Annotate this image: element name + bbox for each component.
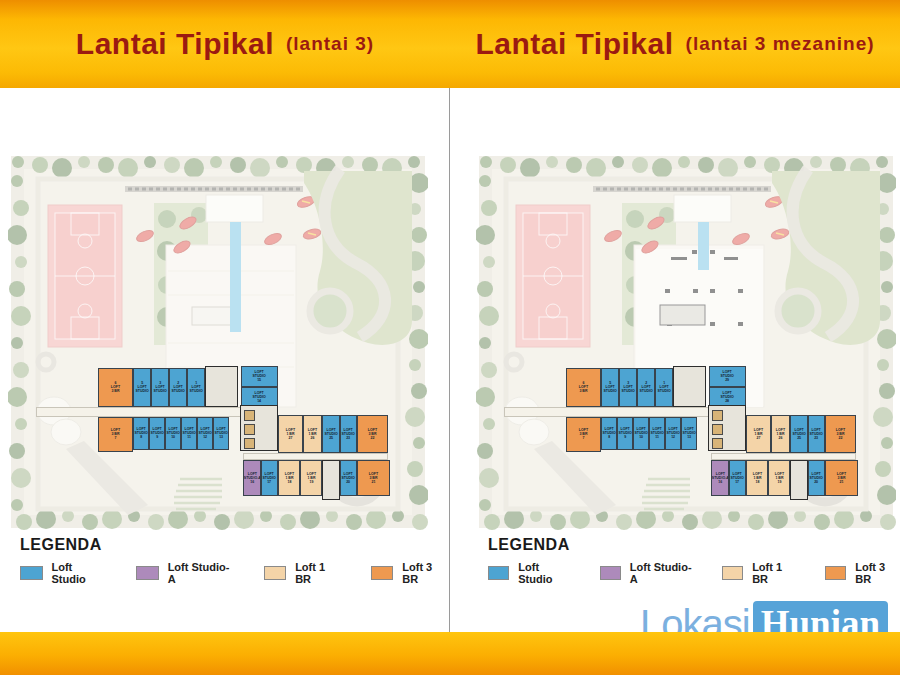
utility-room: [660, 305, 705, 325]
legend-label: Loft Studio: [518, 561, 571, 585]
unit-loft-studio-11: LOFT STUDIO 11: [181, 417, 197, 450]
legend-item-stA: Loft Studio-A: [600, 561, 694, 585]
unit-1-loft-studio: 1 LOFT STUDIO: [655, 368, 673, 407]
legend-label: Loft 3 BR: [855, 561, 900, 585]
unit-loft-1br-27: LOFT 1 BR 27: [746, 415, 771, 453]
header-bar: Lantai Tipikal (lantai 3) Lantai Tipikal…: [0, 0, 900, 88]
unit-loft-studio-10: LOFT STUDIO 10: [165, 417, 181, 450]
floor-panel-lantai-3-mezanine: 6 LOFT 3 BR5 LOFT STUDIO3 LOFT STUDIO2 L…: [450, 88, 900, 632]
unit-loft-1br-27: LOFT 1 BR 27: [278, 415, 303, 453]
unit-6-loft-3br: 6 LOFT 3 BR: [98, 368, 133, 407]
unit-loft-studio-29: LOFT STUDIO 29: [709, 366, 746, 387]
left-panel-title: Lantai Tipikal (lantai 3): [0, 0, 450, 88]
pool: [698, 222, 709, 270]
unit-2-loft-studio: 2 LOFT STUDIO: [637, 368, 655, 407]
unit-loft-3br-7: LOFT 3 BR 7: [566, 417, 601, 452]
unit-loft-studio-17: LOFT STUDIO 17: [261, 460, 278, 496]
page-subtitle: (lantai 3 mezanine): [686, 33, 875, 55]
unit-5-loft-studio: 5 LOFT STUDIO: [601, 368, 619, 407]
unit-loft-3br-22: LOFT 3 BR 22: [825, 415, 856, 453]
legend-item-br3: Loft 3 BR: [371, 561, 450, 585]
unit-loft-studio-23: LOFT STUDIO 23: [340, 415, 357, 453]
unit-loft-1br-26: LOFT 1 BR 26: [771, 415, 790, 453]
pool: [230, 222, 241, 332]
elevator: [244, 410, 255, 421]
page-title: Lantai Tipikal: [76, 27, 274, 61]
legend-label: Loft 3 BR: [402, 561, 450, 585]
legend-label: Loft Studio-A: [630, 561, 694, 585]
unit-loft-1br-19: LOFT 1 BR 19: [768, 460, 790, 496]
corridor: [243, 453, 388, 460]
unit-6-loft-3br: 6 LOFT 3 BR: [566, 368, 601, 407]
legend-item-st: Loft Studio: [488, 561, 572, 585]
service-core: [205, 366, 238, 407]
right-panel-title: Lantai Tipikal (lantai 3 mezanine): [450, 0, 900, 88]
basketball-court: [516, 205, 590, 347]
legend-swatch: [264, 566, 286, 580]
unit-loft-3br-21: LOFT 3 BR 21: [357, 460, 390, 496]
footer-bar: [0, 632, 900, 675]
panel-divider: [449, 88, 450, 632]
unit-loft-studio-13: LOFT STUDIO 13: [681, 417, 697, 450]
unit-loft-studio-20: LOFT STUDIO 20: [340, 460, 357, 496]
service-core: [673, 366, 706, 407]
unit-loft-studio-12: LOFT STUDIO 12: [665, 417, 681, 450]
service-core: [240, 405, 278, 451]
site-plan: 6 LOFT 3 BR5 LOFT STUDIO3 LOFT STUDIO2 L…: [476, 153, 896, 531]
unit-loft-studio-25: LOFT STUDIO 25: [790, 415, 808, 453]
legend-swatch: [20, 566, 43, 580]
unit-loft-3br-21: LOFT 3 BR 21: [825, 460, 858, 496]
unit-loft-studio-15: LOFT STUDIO 15: [241, 366, 278, 387]
legend-item-stA: Loft Studio-A: [136, 561, 236, 585]
site-plan: 6 LOFT 3 BR5 LOFT STUDIO3 LOFT STUDIO2 L…: [8, 153, 428, 531]
unit-3-loft-studio: 3 LOFT STUDIO: [151, 368, 169, 407]
legend-label: Loft Studio: [52, 561, 109, 585]
unit-loft-studio-20: LOFT STUDIO 20: [808, 460, 825, 496]
legend-swatch: [136, 566, 159, 580]
legend: LEGENDA Loft StudioLoft Studio-ALoft 1 B…: [488, 536, 900, 585]
elevator: [712, 410, 723, 421]
legend-label: Loft Studio-A: [168, 561, 236, 585]
unit-loft-studio-17: LOFT STUDIO 17: [729, 460, 746, 496]
legend-swatch: [371, 566, 393, 580]
elevator: [712, 438, 723, 449]
unit-loft-studio-23: LOFT STUDIO 23: [808, 415, 825, 453]
unit-2-loft-studio: 2 LOFT STUDIO: [169, 368, 187, 407]
legend-item-br3: Loft 3 BR: [825, 561, 900, 585]
legend-item-br1: Loft 1 BR: [722, 561, 797, 585]
unit-loft-studio-13: LOFT STUDIO 13: [213, 417, 229, 450]
basketball-court: [48, 205, 122, 347]
unit-loft-studio-10: LOFT STUDIO 10: [633, 417, 649, 450]
legend-item-st: Loft Studio: [20, 561, 108, 585]
unit-loft-studio-8: LOFT STUDIO 8: [133, 417, 149, 450]
unit-loft-1br-18: LOFT 1 BR 18: [278, 460, 300, 496]
legend-swatch: [722, 566, 743, 580]
unit-loft-1br-18: LOFT 1 BR 18: [746, 460, 768, 496]
unit-1-loft-studio: 1 LOFT STUDIO: [187, 368, 205, 407]
legend-item-br1: Loft 1 BR: [264, 561, 343, 585]
legend: LEGENDA Loft StudioLoft Studio-ALoft 1 B…: [20, 536, 450, 585]
legend-label: Loft 1 BR: [752, 561, 797, 585]
legend-swatch: [825, 566, 846, 580]
unit-loft-studio-11: LOFT STUDIO 11: [649, 417, 665, 450]
canopy: [674, 195, 731, 222]
unit-loft-studio-9: LOFT STUDIO 9: [149, 417, 165, 450]
legend-swatch: [600, 566, 621, 580]
unit-loft-studio-a-16: LOFT STUDIO-A 16: [711, 460, 729, 496]
elevator: [244, 424, 255, 435]
elevator: [712, 424, 723, 435]
unit-loft-studio-9: LOFT STUDIO 9: [617, 417, 633, 450]
unit-loft-studio-a-16: LOFT STUDIO-A 16: [243, 460, 261, 496]
page-title: Lantai Tipikal: [475, 27, 673, 61]
deck-room: [192, 307, 235, 325]
corridor: [711, 453, 856, 460]
unit-3-loft-studio: 3 LOFT STUDIO: [619, 368, 637, 407]
unit-loft-1br-26: LOFT 1 BR 26: [303, 415, 322, 453]
floor-panel-lantai-3: 6 LOFT 3 BR5 LOFT STUDIO3 LOFT STUDIO2 L…: [0, 88, 450, 632]
legend-heading: LEGENDA: [488, 536, 900, 554]
unit-loft-studio-12: LOFT STUDIO 12: [197, 417, 213, 450]
service-core: [790, 460, 808, 500]
unit-loft-studio-8: LOFT STUDIO 8: [601, 417, 617, 450]
page-subtitle: (lantai 3): [286, 33, 374, 55]
slide: Lantai Tipikal (lantai 3) Lantai Tipikal…: [0, 0, 900, 675]
unit-loft-3br-22: LOFT 3 BR 22: [357, 415, 388, 453]
legend-swatch: [488, 566, 509, 580]
service-core: [322, 460, 340, 500]
unit-loft-1br-19: LOFT 1 BR 19: [300, 460, 322, 496]
unit-loft-3br-7: LOFT 3 BR 7: [98, 417, 133, 452]
legend-items: Loft StudioLoft Studio-ALoft 1 BRLoft 3 …: [20, 561, 450, 585]
unit-loft-studio-25: LOFT STUDIO 25: [322, 415, 340, 453]
canopy: [206, 195, 263, 222]
elevator: [244, 438, 255, 449]
unit-5-loft-studio: 5 LOFT STUDIO: [133, 368, 151, 407]
legend-items: Loft StudioLoft Studio-ALoft 1 BRLoft 3 …: [488, 561, 900, 585]
legend-heading: LEGENDA: [20, 536, 450, 554]
service-core: [708, 405, 746, 451]
legend-label: Loft 1 BR: [295, 561, 343, 585]
